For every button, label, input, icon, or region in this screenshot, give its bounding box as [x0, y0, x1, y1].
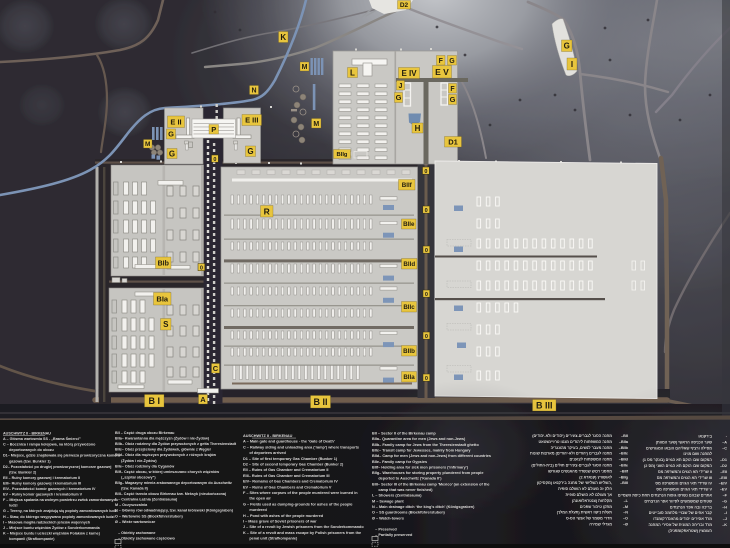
svg-text:M – Oczyszczalnia: M – Oczyszczalnia	[115, 503, 148, 507]
svg-text:–BII: –BII	[621, 434, 628, 438]
svg-text:M – Sewage plant: M – Sewage plant	[372, 499, 404, 503]
svg-text:of deportees arrived: of deportees arrived	[243, 451, 287, 455]
svg-text:G: G	[247, 147, 253, 156]
svg-text:BII – Część druga obozu Birken: BII – Część druga obozu Birkenau	[115, 431, 175, 435]
svg-text:מחנה הסגר לגברים-צעירים חולים: מחנה הסגר לגברים-צעירים חולים (בית-החולי…	[531, 464, 612, 468]
svg-text:מחסני רכוש שנשדד מהאנשים שגורש: מחסני רכוש שנשדד מהאנשים שגורשו	[548, 469, 612, 473]
svg-text:–N: –N	[623, 511, 628, 515]
svg-text:AUSCHWITZ II - BIRKENAU: AUSCHWITZ II - BIRKENAU	[3, 432, 51, 436]
svg-text:BIa: BIa	[156, 294, 169, 303]
svg-text:C – Railway siding and unloadi: C – Railway siding and unloading area (‘…	[243, 445, 359, 449]
svg-text:EV – Ruiny komór gazowych i kr: EV – Ruiny komór gazowych i krematorium …	[3, 493, 83, 497]
svg-text:M: M	[302, 64, 308, 71]
svg-text:חדרי משמר של אנשי הס-ס: חדרי משמר של אנשי הס-ס	[566, 517, 612, 521]
svg-text:F – Sites where corpses of the: F – Sites where corpses of the people mu…	[243, 491, 358, 495]
svg-text:0: 0	[425, 292, 428, 298]
svg-text:BIIb– Obóz rodzinny dla Żydów: BIIb– Obóz rodzinny dla Żydów przywożony…	[115, 441, 237, 446]
svg-text:מתקן טיהור שפכים: מתקן טיהור שפכים	[580, 505, 612, 509]
svg-text:H: H	[415, 124, 421, 133]
svg-text:F: F	[450, 86, 455, 93]
svg-text:מחנה המשפחות לצוענים: מחנה המשפחות לצוענים	[570, 458, 613, 462]
svg-text:BIIc: BIIc	[403, 304, 415, 311]
svg-text:D2 – Site of second temporary: D2 – Site of second temporary Gas Chambe…	[243, 463, 344, 467]
svg-text:0: 0	[425, 334, 428, 340]
svg-text:G: G	[449, 58, 455, 65]
svg-text:–BIIe: –BIIe	[619, 464, 628, 468]
svg-text:H – Pond with ashes of the peo: H – Pond with ashes of the people murder…	[243, 514, 324, 518]
svg-text:מחנה המשפחות ליהודים מגטו טרזי: מחנה המשפחות ליהודים מגטו טרזיינשטאט	[539, 440, 613, 444]
svg-text:מרד אסירים יהודים מהזונדרקומנד: מרד אסירים יהודים מהזונדרקומנדו	[653, 517, 712, 521]
svg-text:Ø – Wieże wartownicze: Ø – Wieże wartownicze	[115, 520, 155, 524]
svg-text:אתרים שבהם נשרפו גופות הנרצחים: אתרים שבהם נשרפו גופות הנרצחים תחת כיפת …	[618, 494, 712, 498]
svg-text:–A: –A	[722, 440, 727, 444]
svg-text:BIIf– Część obozu, w której um: BIIf– Część obozu, w której umieszczano …	[115, 470, 219, 474]
svg-text:L – Centralna Łaźnia (Zentrals: L – Centralna Łaźnia (Zentralsauna)	[115, 498, 178, 502]
svg-text:BIIe– Family camp for Gypsies: BIIe– Family camp for Gypsies	[372, 460, 427, 464]
svg-text:0: 0	[425, 376, 428, 382]
svg-text:–BIIc: –BIIc	[619, 452, 628, 456]
svg-text:J – Miejsce buntu więźniów Żyd: J – Miejsce buntu więźniów Żydów z Sonde…	[3, 525, 101, 530]
svg-text:– Obiekty zachowane: – Obiekty zachowane	[115, 531, 155, 535]
svg-text:I – Mass grave of Soviet priso: I – Mass grave of Soviet prisoners of wa…	[243, 520, 317, 524]
svg-text:deported to Auschwitz (‘Kanada: deported to Auschwitz (‘Kanada II’)	[372, 477, 442, 481]
svg-text:– Obiekty zachowane częściowo: – Obiekty zachowane częściowo	[115, 536, 176, 540]
svg-text:F: F	[439, 58, 444, 65]
svg-text:I – Masowa mogiła radzieckich: I – Masowa mogiła radzieckich jeńców woj…	[3, 520, 91, 524]
svg-text:שרידי תאי הגזים והמשרפה מס V: שרידי תאי הגזים והמשרפה מס V	[656, 488, 712, 492]
svg-text:המקום שבו הוקם תא הגזים (בונקר: המקום שבו הוקם תא הגזים (בונקר מס 1)	[643, 458, 713, 462]
svg-text:B I: B I	[148, 396, 160, 406]
svg-text:E IV: E IV	[401, 69, 417, 78]
svg-text:O – Wartownie SS (Blockführers: O – Wartownie SS (Blockführerstuben)	[115, 514, 183, 518]
svg-text:מגדלי שמירה: מגדלי שמירה	[589, 523, 612, 527]
svg-text:G: G	[168, 130, 174, 139]
svg-text:EII – Ruins of Gas Chamber and: EII – Ruins of Gas Chamber and Crematori…	[243, 468, 328, 472]
svg-text:BIII– Część trzecia obozu Birk: BIII– Część trzecia obozu Birkenau tzw. …	[115, 492, 227, 496]
svg-text:O – SS guardrooms (Blockführer: O – SS guardrooms (Blockführerstuben)	[372, 511, 446, 515]
svg-text:G – Tereny, na których znajduj: G – Tereny, na których znajdują się popi…	[3, 509, 118, 513]
svg-text:– Preserved: – Preserved	[372, 528, 397, 532]
svg-text:חלק זה מעולם לא הושלם סופית: חלק זה מעולם לא הושלם סופית	[558, 487, 612, 491]
svg-text:(Żydów i nie-Żydów): (Żydów i nie-Żydów)	[115, 458, 157, 463]
svg-text:J: J	[399, 83, 403, 90]
svg-text:–Ø: –Ø	[623, 523, 628, 527]
svg-text:D1– Miejsce, gdzie znajdowała: D1– Miejsce, gdzie znajdowała się pierws…	[3, 454, 121, 458]
svg-text:BIIa– Quarantine area for men: BIIa– Quarantine area for men (Jews and …	[372, 437, 466, 441]
svg-text:BIIg– Magazyny mienia zrabowan: BIIg– Magazyny mienia zrabowanego deport…	[115, 481, 232, 485]
svg-text:D2– Pozostałości po drugiej pr: D2– Pozostałości po drugiej prowizoryczn…	[3, 465, 111, 469]
svg-text:N: N	[251, 88, 256, 95]
svg-text:–D1: –D1	[720, 458, 727, 462]
svg-text:BIIf– Holding area for sick me: BIIf– Holding area for sick men prisoner…	[372, 465, 469, 469]
svg-text:מחנה הסגר לגברים-צעירים (יהודי: מחנה הסגר לגברים-צעירים (יהודים ולא-יהוד…	[532, 434, 612, 438]
svg-text:בירקנאו: בירקנאו	[698, 435, 712, 439]
svg-text:M: M	[313, 121, 319, 128]
svg-text:0: 0	[213, 157, 216, 163]
svg-text:deportowanych do obozu: deportowanych do obozu	[3, 448, 55, 452]
svg-text:BIIc– Obóz przejściowy dla Żyd: BIIc– Obóz przejściowy dla Żydówek, głów…	[115, 447, 212, 452]
svg-text:–BIId: –BIId	[619, 458, 629, 462]
svg-text:M: M	[145, 141, 150, 148]
svg-text:מסילה ורציף שאליהם הובאו המגור: מסילה ורציף שאליהם הובאו המגורשים	[646, 446, 712, 450]
svg-text:J – Site of a revolt by Jewish: J – Site of a revolt by Jewish prisoners…	[243, 525, 364, 529]
svg-text:C – Bocznica i rampa kolejowa,: C – Bocznica i rampa kolejowa, na którą …	[3, 443, 96, 447]
svg-text:N – Główny rów odwadniający, t: N – Główny rów odwadniający, tzw. kanał …	[115, 509, 234, 513]
svg-text:מחנה לגברים (יהודים ולא-יהודים: מחנה לגברים (יהודים ולא-יהודים) מארצות ש…	[530, 452, 612, 456]
svg-text:A – Main gate and guardhouse -: A – Main gate and guardhouse - the ‘Gate…	[243, 440, 335, 444]
svg-text:D2: D2	[400, 2, 409, 9]
svg-text:E V: E V	[435, 67, 449, 77]
svg-text:AUSCHWITZ II - BIRKENAU: AUSCHWITZ II - BIRKENAU	[243, 434, 293, 438]
svg-text:G: G	[564, 42, 570, 51]
svg-text:K: K	[280, 33, 286, 42]
svg-text:–D2: –D2	[720, 464, 727, 468]
svg-text:H – Staw, do którego wsypywano: H – Staw, do którego wsypywano popioły z…	[3, 515, 115, 519]
svg-text:G: G	[396, 93, 402, 102]
svg-text:D1: D1	[448, 137, 458, 146]
svg-text:BIIg– Warehouses for storing p: BIIg– Warehouses for storing property pl…	[372, 471, 483, 475]
svg-text:EV – Ruins of Gas Chambers and: EV – Ruins of Gas Chambers and Crematori…	[243, 485, 332, 489]
svg-text:–C: –C	[722, 446, 727, 450]
svg-text:שער הכניסה הראשי (שער המוות): שער הכניסה הראשי (שער המוות)	[656, 440, 712, 444]
svg-text:penal unit (Strafkompanie): penal unit (Strafkompanie)	[243, 537, 298, 541]
svg-text:camp that was never finished): camp that was never finished)	[372, 488, 433, 492]
svg-text:L: L	[350, 68, 355, 77]
svg-text:G: G	[169, 149, 175, 158]
svg-text:למחנה ושם מוינו: למחנה ושם מוינו	[683, 452, 712, 456]
svg-text:(tzw. Kanada II): (tzw. Kanada II)	[115, 487, 149, 491]
svg-text:Ø – Watch-towers: Ø – Watch-towers	[372, 516, 404, 520]
svg-text:תעלת ניקוז ראשית (תעלת המלך): תעלת ניקוז ראשית (תעלת המלך)	[557, 511, 613, 515]
svg-text:BIIb– Family camp for Jews fro: BIIb– Family camp for Jews from the Ther…	[372, 443, 479, 447]
svg-text:EIII– Ruins of Gas Chamber and: EIII– Ruins of Gas Chamber and Crematori…	[243, 474, 330, 478]
svg-text:murdered: murdered	[243, 508, 268, 512]
svg-text:L – Showers (Zentralsauna): L – Showers (Zentralsauna)	[372, 494, 422, 498]
svg-text:–EIII: –EIII	[719, 476, 727, 480]
svg-text:EIV– Remains of Gas Chambers a: EIV– Remains of Gas Chambers and Cremato…	[243, 480, 338, 484]
svg-text:P: P	[211, 125, 216, 134]
svg-text:שרידי תא הגזים והמשרפה מס II: שרידי תא הגזים והמשרפה מס II	[658, 470, 712, 474]
svg-text:–K: –K	[722, 523, 727, 527]
svg-text:מקלחות (צנטראלזאונה): מקלחות (צנטראלזאונה)	[572, 499, 612, 503]
svg-text:0: 0	[200, 265, 203, 271]
svg-text:–EIV: –EIV	[719, 482, 728, 486]
svg-text:המקום שבו הוקם תא הגזים השני (: המקום שבו הוקם תא הגזים השני (מס 2)	[644, 464, 712, 468]
svg-text:A – Główna wartownia SS - „Bra: A – Główna wartownia SS - „Brama Śmierci…	[3, 436, 81, 441]
svg-text:BIIa: BIIa	[403, 374, 415, 381]
svg-text:BIIe– Obóz rodzinny dla Cyganó: BIIe– Obóz rodzinny dla Cyganów	[115, 464, 174, 468]
svg-text:(tzw. Bunkier 2): (tzw. Bunkier 2)	[3, 470, 37, 474]
svg-text:–L: –L	[624, 499, 629, 503]
svg-text:E III: E III	[245, 116, 258, 125]
svg-text:0: 0	[424, 169, 427, 175]
svg-text:BIId: BIId	[403, 261, 415, 268]
svg-text:ludzi: ludzi	[3, 504, 18, 508]
svg-text:בריכה ובה אפר הנרצחים: בריכה ובה אפר הנרצחים	[670, 505, 713, 509]
svg-text:–I: –I	[724, 511, 727, 515]
svg-text:–BIII: –BIII	[620, 481, 628, 485]
svg-text:gazowa (tzw. Bunkier 1): gazowa (tzw. Bunkier 1)	[3, 459, 51, 463]
svg-text:–G: –G	[722, 499, 727, 503]
svg-text:BIId– Obóz dla mężczyzn przywo: BIId– Obóz dla mężczyzn przywożonych z r…	[115, 453, 216, 457]
svg-text:BIIa– Kwarantanna dla mężczyzn: BIIa– Kwarantanna dla mężczyzn (Żydów i …	[115, 436, 210, 441]
svg-text:–J: –J	[723, 517, 727, 521]
svg-text:BIII– Sector III of the Birken: BIII– Sector III of the Birkenau camp ‘M…	[372, 482, 490, 486]
svg-text:–EV: –EV	[720, 488, 728, 492]
svg-text:–BIIf: –BIIf	[620, 469, 629, 473]
svg-text:EIV– Pozostałości komór gazowy: EIV– Pozostałości komór gazowych i krema…	[3, 487, 96, 491]
svg-text:B II: B II	[313, 397, 327, 407]
svg-text:(„szpital obozowy”): („szpital obozowy”)	[115, 475, 156, 479]
svg-text:שרידי תאי הגזים והמשרפה מס IV: שרידי תאי הגזים והמשרפה מס IV	[655, 482, 712, 486]
svg-text:0: 0	[425, 248, 428, 254]
svg-text:העונשין (שטראפקומפניה): העונשין (שטראפקומפניה)	[668, 529, 712, 533]
svg-text:G – Fields used as dumping-gro: G – Fields used as dumping-grounds for a…	[243, 502, 353, 506]
svg-text:K – Miejsce buntu i ucieczki w: K – Miejsce buntu i ucieczki więźniów Po…	[3, 531, 100, 535]
svg-text:EIII– Ruiny komory gazowej i k: EIII– Ruiny komory gazowej i krematorium…	[3, 481, 81, 485]
svg-text:K – Site of a revolt and mass: K – Site of a revolt and mass escape by …	[243, 531, 361, 535]
svg-text:R: R	[264, 206, 270, 216]
svg-text:מרד ובריחה המונית של אסירי המח: מרד ובריחה המונית של אסירי המחנה	[648, 523, 712, 527]
svg-text:BIIf: BIIf	[402, 182, 413, 189]
svg-text:G: G	[450, 95, 456, 104]
svg-text:–BIIb: –BIIb	[619, 446, 629, 450]
svg-text:BII – Sector II of the Birkena: BII – Sector II of the Birkenau camp	[372, 432, 436, 436]
svg-text:BIIg: BIIg	[337, 152, 348, 158]
svg-text:the open air: the open air	[243, 497, 271, 501]
svg-text:A: A	[200, 395, 206, 404]
svg-text:BIId– Camp for men (Jews and n: BIId– Camp for men (Jews and non-Jews) f…	[372, 454, 491, 458]
svg-text:–BIIg: –BIIg	[619, 475, 629, 479]
svg-text:I: I	[571, 60, 573, 69]
svg-text:D1 – Site of first temporary G: D1 – Site of first temporary Gas Chamber…	[243, 457, 338, 461]
svg-text:0: 0	[425, 208, 428, 214]
svg-text:–H: –H	[722, 505, 727, 509]
svg-text:שרידי תא הגזים והמשרפה מס III: שרידי תא הגזים והמשרפה מס III	[657, 476, 712, 480]
svg-text:F – Miejsca spalania na wolnym: F – Miejsca spalania na wolnym powietrzu…	[3, 498, 118, 502]
svg-text:C: C	[213, 364, 219, 373]
svg-text:N – Main drainage ditch ‘the k: N – Main drainage ditch ‘the king’s ditc…	[372, 505, 475, 509]
svg-text:–BIIa: –BIIa	[619, 440, 629, 444]
svg-text:קבר אחים של שבויי מלחמה סובייט: קבר אחים של שבויי מלחמה סובייטים	[649, 511, 713, 515]
svg-text:S: S	[163, 320, 169, 329]
svg-text:–M: –M	[623, 505, 628, 509]
svg-text:אך מעולם לא הושלם סופית: אך מעולם לא הושלם סופית	[566, 493, 613, 497]
svg-text:–F: –F	[723, 494, 728, 498]
svg-text:השליש השלישי של מחנה בירקנאו (: השליש השלישי של מחנה בירקנאו (מקסיקו),	[537, 481, 612, 485]
svg-text:E II: E II	[170, 117, 181, 126]
svg-text:kompanii (Strafkompanie): kompanii (Strafkompanie)	[3, 537, 55, 541]
svg-text:BIIc– Transit camp for Jewesse: BIIc– Transit camp for Jewesses, mainly …	[372, 448, 471, 452]
svg-text:–EII: –EII	[720, 470, 727, 474]
svg-text:EII – Ruiny komory gazowej i k: EII – Ruiny komory gazowej i krematorium…	[3, 476, 80, 480]
svg-text:–O: –O	[623, 517, 628, 521]
svg-text:מחנה מעבר לנשים, בעיקר מהונגרי: מחנה מעבר לנשים, בעיקר מהונגריה	[551, 446, 613, 450]
svg-text:לאושוויץ (קנאדא 2): לאושוויץ (קנאדא 2)	[579, 475, 612, 479]
svg-text:BIIb: BIIb	[403, 348, 415, 355]
svg-text:BIIe: BIIe	[403, 221, 415, 228]
svg-text:שטחים שמשמשים לפיזור אפר הנרצח: שטחים שמשמשים לפיזור אפר הנרצחים	[644, 499, 712, 503]
svg-text:BIb: BIb	[158, 260, 169, 267]
